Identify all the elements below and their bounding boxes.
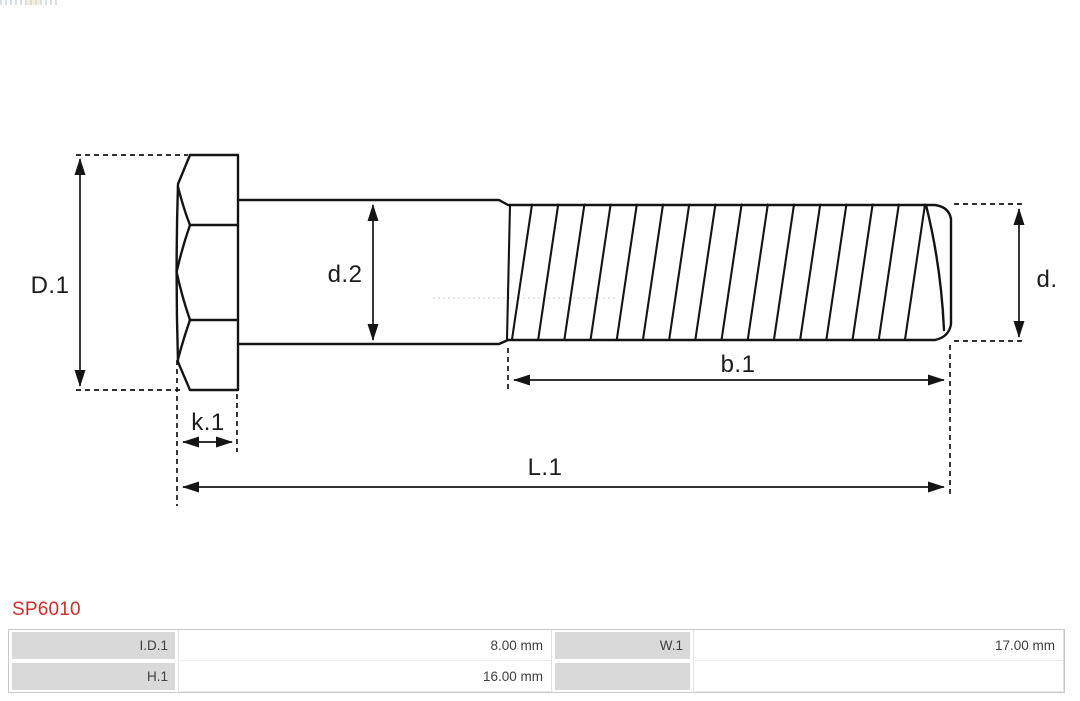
dim-L1: L.1 [183,345,950,494]
spec-label: H.1 [12,663,175,690]
dim-label-L1: L.1 [528,454,563,481]
dim-label-D1: D.1 [31,272,70,299]
part-number: SP6010 [12,599,81,621]
dim-d: d. [954,204,1058,341]
spec-value [693,661,1064,692]
dim-label-d: d. [1036,266,1057,293]
dim-b1: b.1 [508,348,944,392]
dim-label-k1: k.1 [191,409,225,436]
spec-label-cell [552,661,693,692]
bolt-technical-drawing: D.1 k.1 d.2 d. b.1 L.1 [0,0,1080,555]
tip-chamfer-line [926,205,944,330]
dim-d2: d.2 [328,205,373,340]
spec-value: 8.00 mm [178,630,552,661]
spec-label-cell: H.1 [9,661,178,692]
spec-value: 16.00 mm [178,661,552,692]
bolt-head [177,155,238,390]
dim-label-b1: b.1 [721,351,756,378]
spec-label [555,663,690,690]
spec-table: I.D.1 8.00 mm W.1 17.00 mm H.1 16.00 mm [8,629,1065,693]
spec-label: W.1 [555,632,690,659]
dim-D1: D.1 [31,155,188,390]
spec-label-cell: W.1 [552,630,693,661]
spec-label: I.D.1 [12,632,175,659]
thread-hatch-lines [512,205,925,340]
thread-start-line [507,205,510,339]
spec-value: 17.00 mm [693,630,1064,661]
dim-label-d2: d.2 [328,261,363,288]
spec-label-cell: I.D.1 [9,630,178,661]
bolt-thread [507,205,944,340]
page: { "page": { "part_number": "SP6010" }, "… [0,0,1080,701]
